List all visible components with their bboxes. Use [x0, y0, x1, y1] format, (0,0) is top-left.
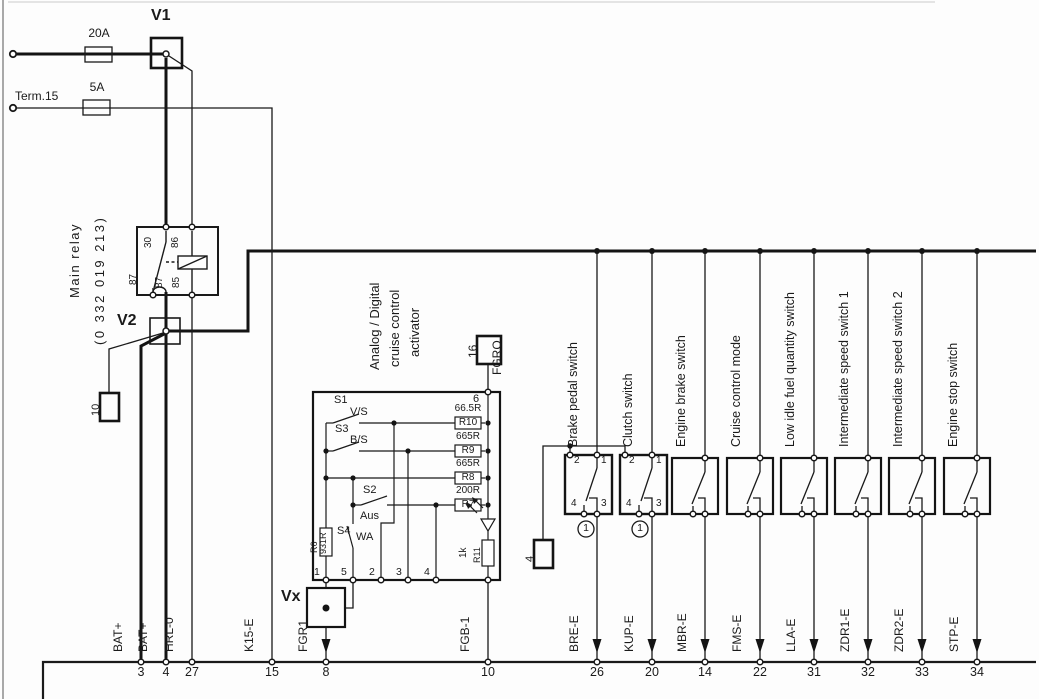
relay-pin-87b: 87	[153, 277, 166, 288]
resistor-r7-value: 200R	[452, 486, 484, 497]
switch-s2-mode: Aus	[360, 511, 379, 523]
brake-pin-1: 1	[601, 456, 607, 467]
ecu-pin-32: 32	[860, 666, 876, 679]
switch-s2-arm	[361, 496, 387, 505]
clutch-pin-3: 3	[656, 499, 662, 510]
ecu-pin-27: 27	[184, 666, 200, 679]
v1-label: V1	[151, 8, 171, 25]
relay-pin-86: 86	[169, 237, 182, 248]
activator-title-line2: cruise control	[388, 290, 401, 367]
ecu-pin-10: 10	[480, 666, 496, 679]
relay-pin-87a: 87	[127, 274, 140, 285]
label-intermediate-speed-switch-2: Intermediate speed switch 2	[892, 291, 905, 447]
term15-label: Term.15	[15, 90, 58, 103]
vx-dot	[323, 605, 330, 612]
clutch-pin-4: 4	[626, 499, 632, 510]
ecu-pin-33: 33	[914, 666, 930, 679]
signal-hrl-0: HRL-0	[163, 617, 176, 652]
activator-pin-2: 2	[369, 567, 375, 578]
signal-zdr2-e: ZDR2-E	[893, 609, 906, 652]
label-cruise-control-mode: Cruise control mode	[730, 335, 743, 447]
relay-part-number: (0 332 019 213)	[93, 216, 106, 345]
ecu-pin-34: 34	[969, 666, 985, 679]
ecu-pin-20: 20	[644, 666, 660, 679]
switch-s3-mode: B/S	[350, 435, 368, 447]
activator-pin-1: 1	[314, 567, 320, 578]
resistor-r11-ref: R11	[471, 547, 484, 563]
connector-16-label: 16	[467, 345, 480, 358]
label-clutch-switch: Clutch switch	[622, 373, 635, 447]
brake-pin-3: 3	[601, 499, 607, 510]
resistor-r7-ref: R7	[455, 500, 481, 511]
signal-k15-e: K15-E	[243, 619, 256, 652]
switch-s4-label: S4	[337, 526, 350, 538]
connector-10-label: 10	[90, 404, 103, 416]
signal-lla-e: LLA-E	[785, 619, 798, 652]
resistor-r11-value: 1k	[457, 547, 470, 558]
label-brake-pedal-switch: Brake pedal switch	[567, 342, 580, 447]
signal-bre-e: BRE-E	[568, 615, 581, 652]
badge-clutch: 1	[635, 523, 645, 534]
ecu-pin-15: 15	[264, 666, 280, 679]
switch-s4-mode: WA	[356, 532, 373, 544]
ecu-pin-14: 14	[697, 666, 713, 679]
activator-title-line3: activator	[408, 308, 421, 357]
fuse-5a-label: 5A	[84, 81, 110, 94]
signal-fms-e: FMS-E	[731, 615, 744, 652]
ecu-pin-26: 26	[589, 666, 605, 679]
signal-fgb-1: FGB-1	[459, 617, 472, 652]
resistor-r8-ref: R8	[455, 473, 481, 484]
switch-s1-mode: V/S	[350, 407, 368, 419]
label-intermediate-speed-switch-1: Intermediate speed switch 1	[838, 291, 851, 447]
schematic-artwork	[0, 0, 1039, 699]
v2-node	[163, 328, 169, 334]
term15-terminal	[10, 105, 16, 111]
clutch-pin-2: 2	[629, 456, 635, 467]
relay-pin-30: 30	[142, 237, 155, 248]
signal-stp-e: STP-E	[948, 617, 961, 652]
simple-switch-symbols	[672, 458, 990, 514]
ecu-pin-22: 22	[752, 666, 768, 679]
relay-pin-85: 85	[170, 277, 183, 288]
badge-brake: 1	[581, 523, 591, 534]
resistor-r6-value: 931R	[317, 532, 330, 554]
brake-pin-2: 2	[574, 456, 580, 467]
brake-pin-4: 4	[571, 499, 577, 510]
fuse-20a-label: 20A	[84, 27, 114, 40]
ecu-pin-4: 4	[158, 666, 174, 679]
ecu-pin-31: 31	[806, 666, 822, 679]
ecu-pin-8: 8	[318, 666, 334, 679]
v2-label: V2	[117, 313, 137, 330]
wiring-diagram: 20A V1 Term.15 5A V2 Vx 10 Main relay (0…	[0, 0, 1039, 699]
activator-title-line1: Analog / Digital	[368, 283, 381, 370]
label-low-idle-fuel-quantity-switch: Low idle fuel quantity switch	[784, 292, 797, 447]
supply-wires	[15, 54, 1036, 659]
clutch-pin-1: 1	[656, 456, 662, 467]
label-engine-brake-switch: Engine brake switch	[675, 335, 688, 447]
fgro-signal-label: FGRO	[491, 340, 504, 375]
battery-terminal	[10, 51, 16, 57]
signal-zdr1-e: ZDR1-E	[839, 609, 852, 652]
switch-s2-label: S2	[363, 485, 376, 497]
resistor-r9-value: 665R	[452, 432, 484, 443]
signal-bat-plus-1: BAT+	[112, 623, 125, 652]
vx-label: Vx	[281, 589, 301, 606]
activator-pin-3: 3	[396, 567, 402, 578]
ecu-pin-3: 3	[133, 666, 149, 679]
connector-4-box	[534, 540, 553, 568]
switch-s3-label: S3	[335, 424, 348, 436]
resistor-r8-value: 665R	[452, 459, 484, 470]
relay-name-label: Main relay	[68, 223, 81, 298]
label-engine-stop-switch: Engine stop switch	[947, 343, 960, 447]
resistor-r10-ref: R10	[455, 418, 481, 429]
signal-direction-arrows	[322, 639, 982, 653]
resistor-r9-ref: R9	[455, 446, 481, 457]
activator-pin-4: 4	[424, 567, 430, 578]
signal-kup-e: KUP-E	[623, 615, 636, 652]
connector-4-label: 4	[524, 556, 537, 562]
v1-node	[163, 51, 169, 57]
signal-fgr1: FGR1	[297, 620, 310, 652]
resistor-r10-value: 66.5R	[452, 404, 484, 415]
signal-bat-plus-2: BAT+	[137, 623, 150, 652]
activator-pin-5: 5	[341, 567, 347, 578]
switch-s1-label: S1	[334, 395, 347, 407]
signal-mbr-e: MBR-E	[676, 613, 689, 652]
